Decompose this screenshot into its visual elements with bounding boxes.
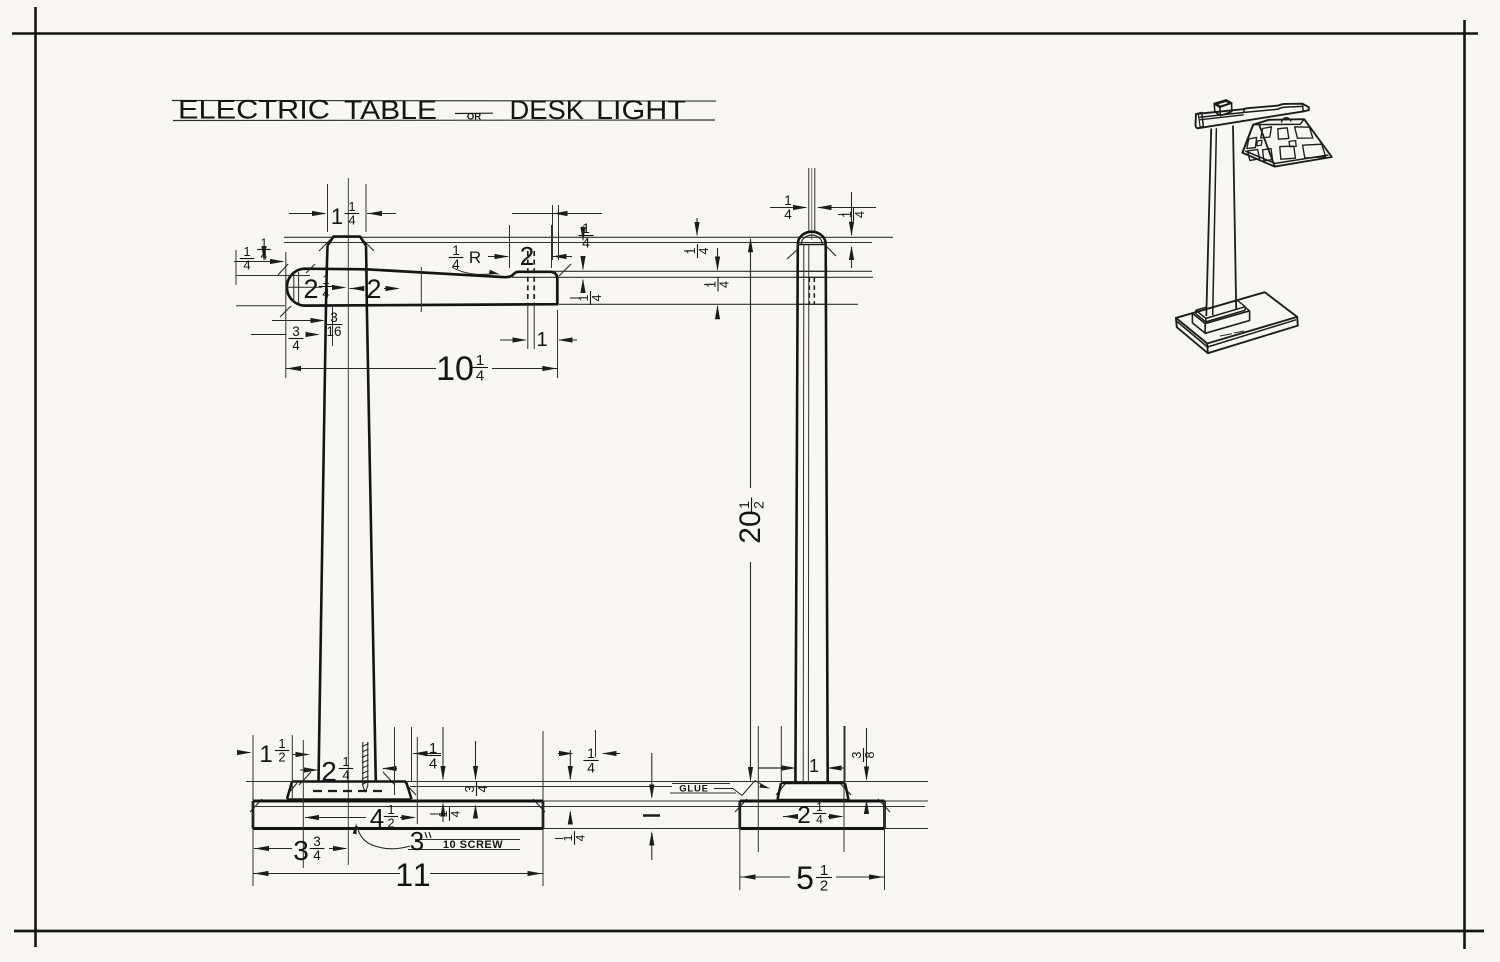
svg-text:3: 3 — [463, 785, 477, 792]
svg-text:4: 4 — [574, 834, 588, 841]
svg-text:2: 2 — [321, 756, 337, 787]
svg-text:1: 1 — [577, 294, 591, 301]
svg-text:4: 4 — [322, 286, 329, 301]
svg-text:4: 4 — [243, 258, 250, 273]
svg-text:3: 3 — [313, 834, 321, 849]
svg-text:16: 16 — [326, 324, 341, 339]
svg-text:4: 4 — [261, 249, 268, 263]
svg-text:1: 1 — [536, 329, 547, 351]
svg-text:ELECTRIC: ELECTRIC — [178, 95, 330, 125]
svg-text:2: 2 — [820, 878, 828, 895]
svg-text:4: 4 — [429, 756, 437, 773]
svg-text:1: 1 — [809, 756, 819, 776]
svg-text:4: 4 — [816, 813, 823, 827]
svg-text:2: 2 — [751, 501, 767, 509]
svg-text:OR: OR — [467, 112, 481, 123]
svg-text:3: 3 — [330, 310, 338, 325]
svg-text:4: 4 — [370, 803, 384, 833]
svg-text:2: 2 — [520, 241, 534, 271]
svg-text:3: 3 — [850, 751, 864, 758]
svg-text:1: 1 — [784, 193, 792, 208]
svg-text:1: 1 — [429, 740, 437, 757]
svg-text:2: 2 — [366, 274, 381, 304]
svg-text:2: 2 — [303, 274, 318, 304]
svg-text:1: 1 — [476, 352, 484, 369]
svg-text:2: 2 — [278, 750, 285, 765]
svg-text:2: 2 — [387, 816, 394, 831]
svg-text:4: 4 — [697, 247, 711, 254]
svg-text:4: 4 — [292, 338, 300, 353]
svg-text:DESK: DESK — [510, 95, 585, 125]
svg-text:11: 11 — [395, 857, 432, 893]
svg-text:5: 5 — [796, 860, 814, 896]
svg-text:10 SCREW: 10 SCREW — [443, 839, 503, 851]
svg-text:1: 1 — [331, 204, 343, 229]
svg-text:4: 4 — [853, 211, 867, 218]
svg-text:3: 3 — [292, 324, 300, 339]
svg-text:2: 2 — [797, 802, 810, 829]
svg-text:20: 20 — [734, 510, 767, 543]
svg-text:4: 4 — [449, 810, 463, 817]
svg-text:4: 4 — [718, 281, 732, 288]
svg-text:4: 4 — [587, 760, 595, 776]
svg-text:8: 8 — [863, 751, 877, 758]
svg-text:4: 4 — [476, 368, 484, 385]
svg-text:4: 4 — [313, 848, 321, 863]
svg-text:4: 4 — [342, 768, 349, 783]
svg-text:1: 1 — [820, 862, 828, 879]
svg-text:TABLE: TABLE — [344, 95, 437, 125]
svg-text:10: 10 — [436, 350, 474, 388]
svg-text:4: 4 — [476, 785, 490, 792]
svg-text:LIGHT: LIGHT — [596, 95, 686, 125]
svg-text:R: R — [469, 248, 481, 267]
svg-text:4: 4 — [348, 213, 355, 228]
svg-text:4: 4 — [784, 207, 792, 222]
svg-text:4: 4 — [590, 294, 604, 301]
svg-text:GLUE: GLUE — [679, 784, 709, 795]
svg-text:3: 3 — [293, 835, 309, 866]
svg-text:1: 1 — [259, 741, 272, 768]
svg-text:1: 1 — [452, 243, 460, 258]
svg-text:3: 3 — [410, 826, 424, 856]
